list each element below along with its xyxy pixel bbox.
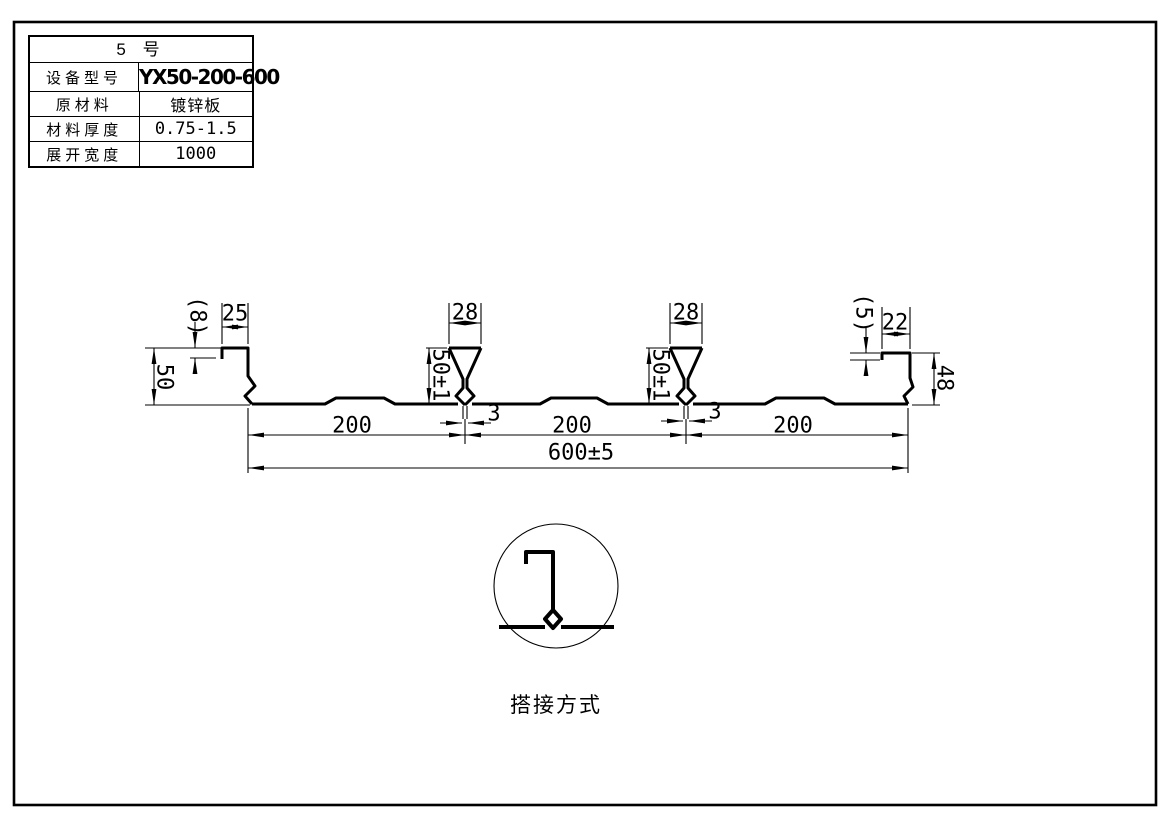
- dim-text-rib2-stem: 3: [708, 400, 721, 425]
- drawing-sheet: (8) 25 50 28 50±1 3 28 50±1 3 (5) 22 48 …: [0, 0, 1169, 827]
- lap-joint-detail: 搭接方式: [494, 524, 618, 717]
- dim-text-rib1-stem: 3: [487, 402, 500, 427]
- model-value: YX50-200-600: [139, 65, 252, 89]
- feed-width-value: 1000: [140, 144, 252, 164]
- detail-end-profile: [526, 552, 553, 610]
- table-row-thickness: 材料厚度 0.75-1.5: [30, 117, 252, 142]
- dimension-lines: [145, 303, 940, 473]
- dim-text-right-lip: (5): [851, 293, 876, 333]
- dim-text-left-top: 25: [222, 302, 249, 327]
- table-row-material: 原材料 镀锌板: [30, 92, 252, 117]
- dim-text-rib2-height: 50±1: [648, 349, 673, 402]
- title-block: 5 号 设备型号 YX50-200-600 原材料 镀锌板 材料厚度 0.75-…: [28, 35, 254, 168]
- dim-text-pitch3: 200: [773, 414, 813, 439]
- dim-text-rib1-top: 28: [452, 301, 479, 326]
- profile-cross-section: [222, 348, 913, 419]
- thickness-value: 0.75-1.5: [140, 119, 252, 139]
- profile-flange-span3: [693, 398, 908, 404]
- detail-circle: [494, 524, 618, 648]
- detail-crimp-diamond: [545, 610, 561, 628]
- profile-right-end: [882, 353, 913, 404]
- dim-text-pitch2: 200: [552, 414, 592, 439]
- sheet-number: 5 号: [30, 37, 252, 63]
- thickness-label: 材料厚度: [30, 117, 140, 141]
- detail-caption: 搭接方式: [510, 694, 602, 717]
- dim-text-left-height: 50: [152, 364, 177, 391]
- table-row-feed-width: 展开宽度 1000: [30, 142, 252, 166]
- dim-text-pitch1: 200: [332, 414, 372, 439]
- dim-text-cover-width: 600±5: [548, 441, 614, 466]
- dim-text-rib2-top: 28: [673, 301, 700, 326]
- profile-rib1: [449, 348, 481, 405]
- table-row-model: 设备型号 YX50-200-600: [30, 63, 252, 92]
- dim-text-right-top: 22: [882, 311, 909, 336]
- profile-left-end: [222, 348, 255, 404]
- feed-width-label: 展开宽度: [30, 142, 140, 166]
- dim-text-right-height: 48: [932, 365, 957, 392]
- material-label: 原材料: [30, 92, 140, 116]
- material-value: 镀锌板: [140, 92, 252, 116]
- model-label: 设备型号: [30, 63, 139, 91]
- dimension-texts: (8) 25 50 28 50±1 3 28 50±1 3 (5) 22 48 …: [152, 293, 957, 465]
- dim-text-rib1-height: 50±1: [428, 349, 453, 402]
- dim-text-left-lip: (8): [185, 296, 210, 336]
- profile-flange-span1: [252, 398, 458, 404]
- profile-rib2: [670, 348, 702, 405]
